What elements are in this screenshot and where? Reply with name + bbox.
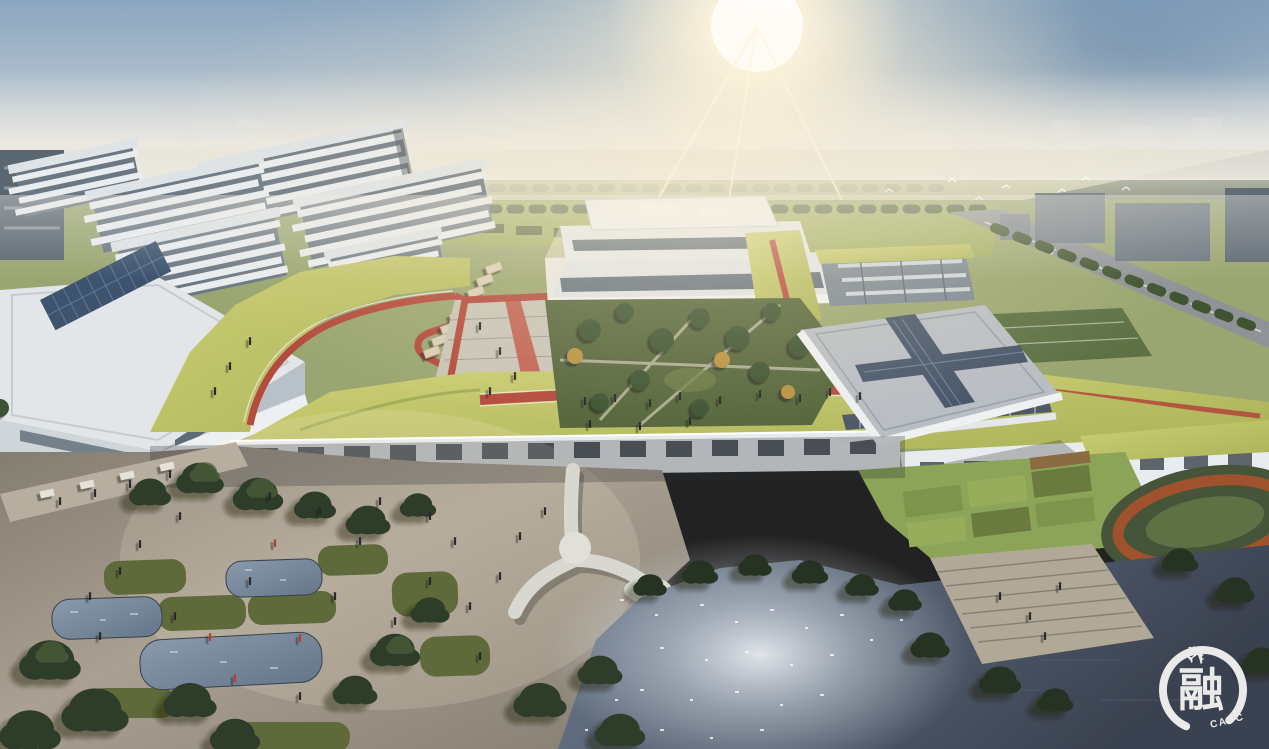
pond xyxy=(225,558,322,597)
lake xyxy=(550,535,1269,749)
logo-character: 融 xyxy=(1178,663,1224,717)
pond xyxy=(51,596,162,640)
pond xyxy=(139,631,323,690)
architectural-rendering: ✈ 融 CAUC xyxy=(0,0,1269,749)
rendering-canvas: ✈ 融 CAUC xyxy=(0,0,1269,749)
